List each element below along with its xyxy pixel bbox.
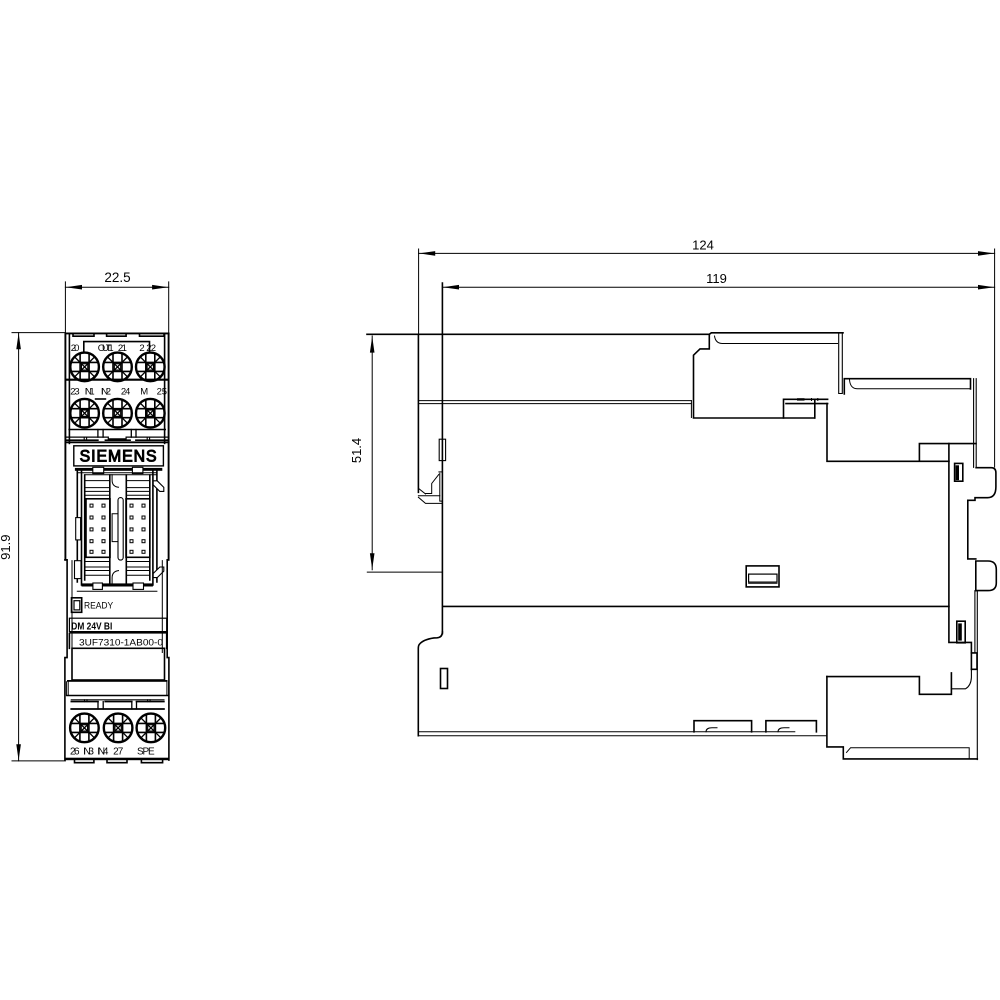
svg-text:51.4: 51.4 <box>349 438 364 463</box>
svg-text:20: 20 <box>71 343 79 354</box>
svg-text:25: 25 <box>157 387 167 398</box>
svg-text:IN4: IN4 <box>97 747 109 758</box>
svg-text:IN1: IN1 <box>85 387 95 398</box>
svg-text:27: 27 <box>113 747 124 758</box>
svg-text:26: 26 <box>70 747 80 758</box>
svg-text:READY: READY <box>84 601 114 612</box>
svg-text:IN2: IN2 <box>101 387 111 398</box>
svg-text:.2: .2 <box>139 343 145 354</box>
svg-text:24: 24 <box>121 387 130 398</box>
svg-text:91.9: 91.9 <box>0 535 13 560</box>
svg-text:22.5: 22.5 <box>104 270 130 285</box>
svg-text:3UF7310-1AB00-0: 3UF7310-1AB00-0 <box>79 637 163 648</box>
svg-text:SPE: SPE <box>137 747 155 758</box>
svg-text:SIEMENS: SIEMENS <box>80 448 158 466</box>
svg-text:119: 119 <box>706 271 727 286</box>
svg-text:23: 23 <box>70 387 79 398</box>
svg-text:OUT1: OUT1 <box>98 343 114 354</box>
svg-text:M: M <box>140 387 148 398</box>
svg-text:IN3: IN3 <box>83 747 94 758</box>
svg-text:DM 24V BI: DM 24V BI <box>71 620 112 632</box>
svg-text:124: 124 <box>692 237 714 252</box>
